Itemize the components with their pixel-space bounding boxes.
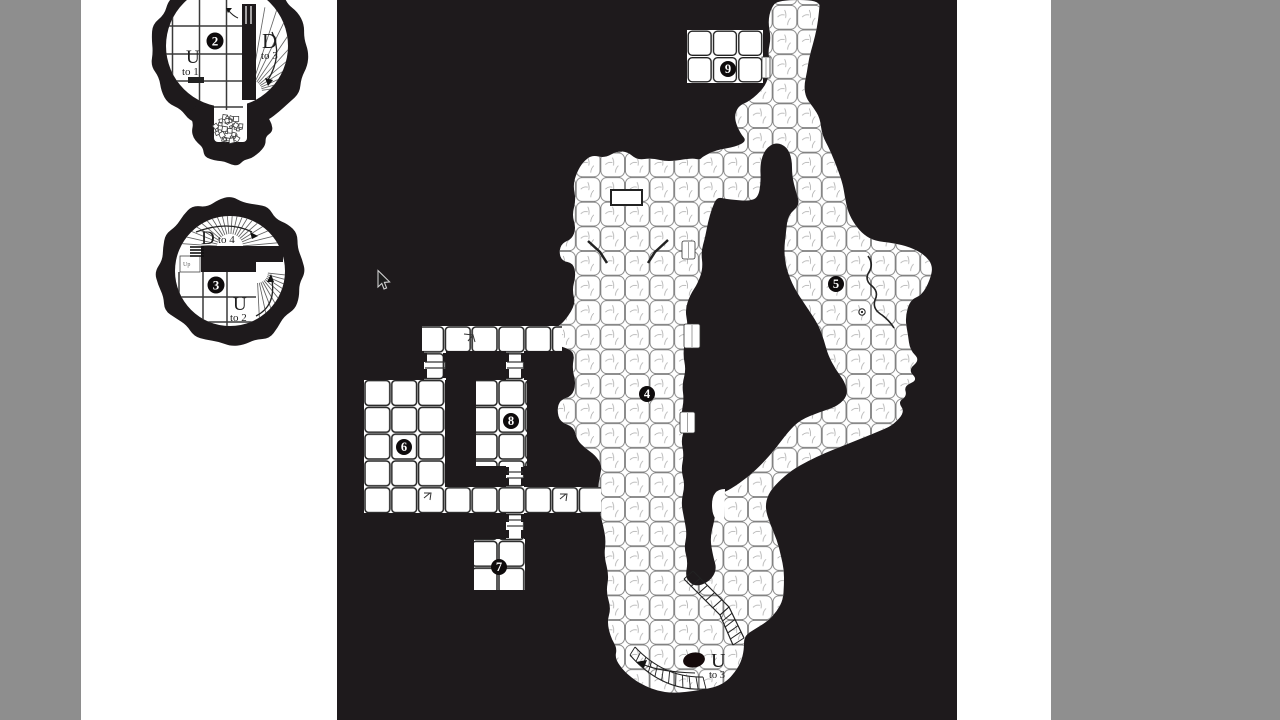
svg-text:4: 4 <box>644 387 651 401</box>
svg-text:7: 7 <box>496 560 502 574</box>
svg-text:to 2: to 2 <box>230 312 247 324</box>
svg-text:to 1: to 1 <box>182 66 199 78</box>
svg-text:to 3: to 3 <box>709 670 725 681</box>
svg-text:U: U <box>186 47 200 68</box>
svg-text:3: 3 <box>213 278 220 293</box>
svg-text:9: 9 <box>725 62 731 76</box>
svg-text:Up: Up <box>183 262 190 268</box>
svg-text:8: 8 <box>508 414 514 428</box>
svg-text:5: 5 <box>833 277 839 291</box>
svg-text:D: D <box>201 228 215 249</box>
svg-text:to 4: to 4 <box>218 234 235 246</box>
svg-text:to 3: to 3 <box>261 50 278 62</box>
svg-text:U: U <box>711 650 726 672</box>
svg-text:6: 6 <box>401 440 407 454</box>
svg-text:2: 2 <box>212 34 219 49</box>
